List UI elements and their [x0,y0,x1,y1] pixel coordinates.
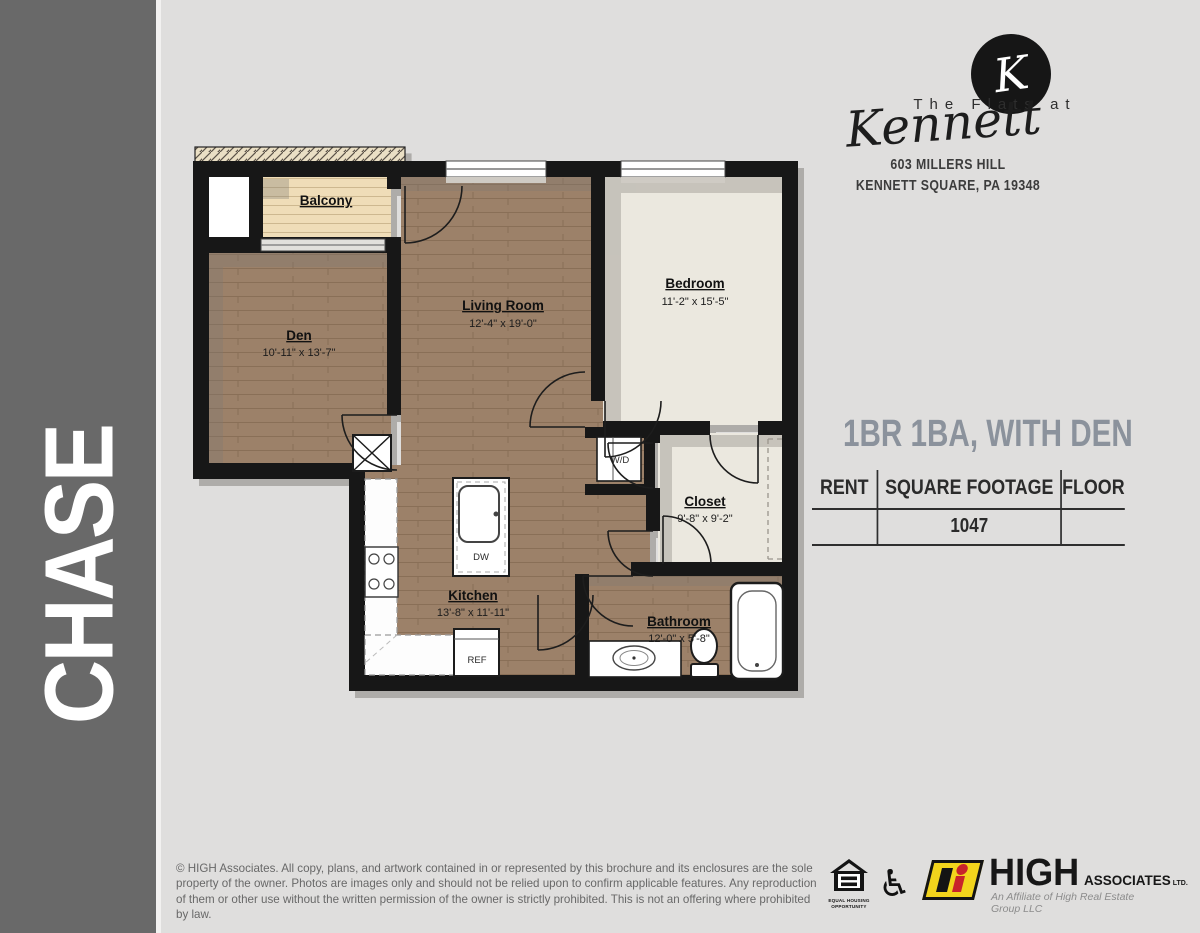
kitchen-dims: 13'-8" x 11'-11" [437,607,509,619]
closet-dims: 9'-8" x 9'-2" [677,513,733,525]
bathtub [731,583,783,679]
high-mark-bar [936,868,953,892]
unit-headline: 1BR 1BA, WITH DEN [843,413,1133,456]
refrigerator-label: REF [468,655,487,666]
high-associates-logo: HIGH ASSOCIATES LTD. An Affiliate of Hig… [925,858,1155,910]
high-associates-text: ASSOCIATES [1084,873,1171,888]
living-dims: 12'-4" x 19'-0" [469,318,537,330]
spec-col-floor: FLOOR [1062,470,1125,508]
closet-label: Closet [684,494,726,509]
spec-col-rent: RENT [812,470,877,508]
living-window [446,161,546,183]
brand-name-script: Kennett [825,91,1063,156]
floor-plan: DW REF W/D [193,143,805,705]
equal-housing-icon [829,858,869,892]
room-entry [207,175,253,241]
high-tagline: An Affiliate of High Real Estate Group L… [991,891,1155,915]
bedroom-dims: 11'-2" x 15'-5" [662,296,729,308]
kitchen-label: Kitchen [448,588,498,603]
high-wordmark: HIGH ASSOCIATES LTD. [989,852,1188,895]
brand-address-line1: 603 MILLERS HILL [825,156,1071,173]
dishwasher-label: DW [473,552,489,563]
spec-table-header-row: RENT SQUARE FOOTAGE FLOOR [812,470,1125,510]
high-ltd-text: LTD. [1173,880,1188,887]
refrigerator: REF [454,629,499,676]
bathroom-dims: 12'-0" x 5'-8" [648,633,710,645]
spec-value-square-footage: 1047 [877,510,1062,544]
bathroom-label: Bathroom [647,614,711,629]
stove [365,547,398,597]
living-label: Living Room [462,298,544,313]
equal-housing-logo: EQUAL HOUSING OPPORTUNITY [827,858,871,909]
high-mark-i [952,876,965,892]
utility-shaft [353,435,391,471]
den-dims: 10'-11" x 13'-7" [263,347,336,359]
accessibility-icon: ♿ [878,862,911,905]
balcony-label: Balcony [300,193,353,208]
spec-value-floor [1062,510,1125,544]
spec-value-rent [812,510,877,544]
plan-name: CHASE [23,426,135,725]
spec-col-square-footage: SQUARE FOOTAGE [877,470,1062,508]
brand-address-line2: KENNETT SQUARE, PA 19348 [825,177,1071,194]
high-mark-dot [955,864,969,875]
plan-name-wrap: CHASE [24,355,134,795]
balcony-rail-window [261,239,385,251]
kitchen-island: DW [453,478,509,576]
high-mark-icon [922,860,984,900]
sink-vanity [589,641,681,677]
footer-legal: © HIGH Associates. All copy, plans, and … [176,861,824,922]
den-label: Den [286,328,312,343]
spec-table-value-row: 1047 [812,510,1125,546]
plan-name-band: CHASE [0,0,161,933]
island-sink [459,486,499,542]
equal-housing-label: EQUAL HOUSING OPPORTUNITY [827,898,871,909]
high-name: HIGH [989,852,1079,895]
spec-table: RENT SQUARE FOOTAGE FLOOR 1047 [812,470,1125,546]
bedroom-window [621,161,725,183]
bedroom-label: Bedroom [665,276,724,291]
